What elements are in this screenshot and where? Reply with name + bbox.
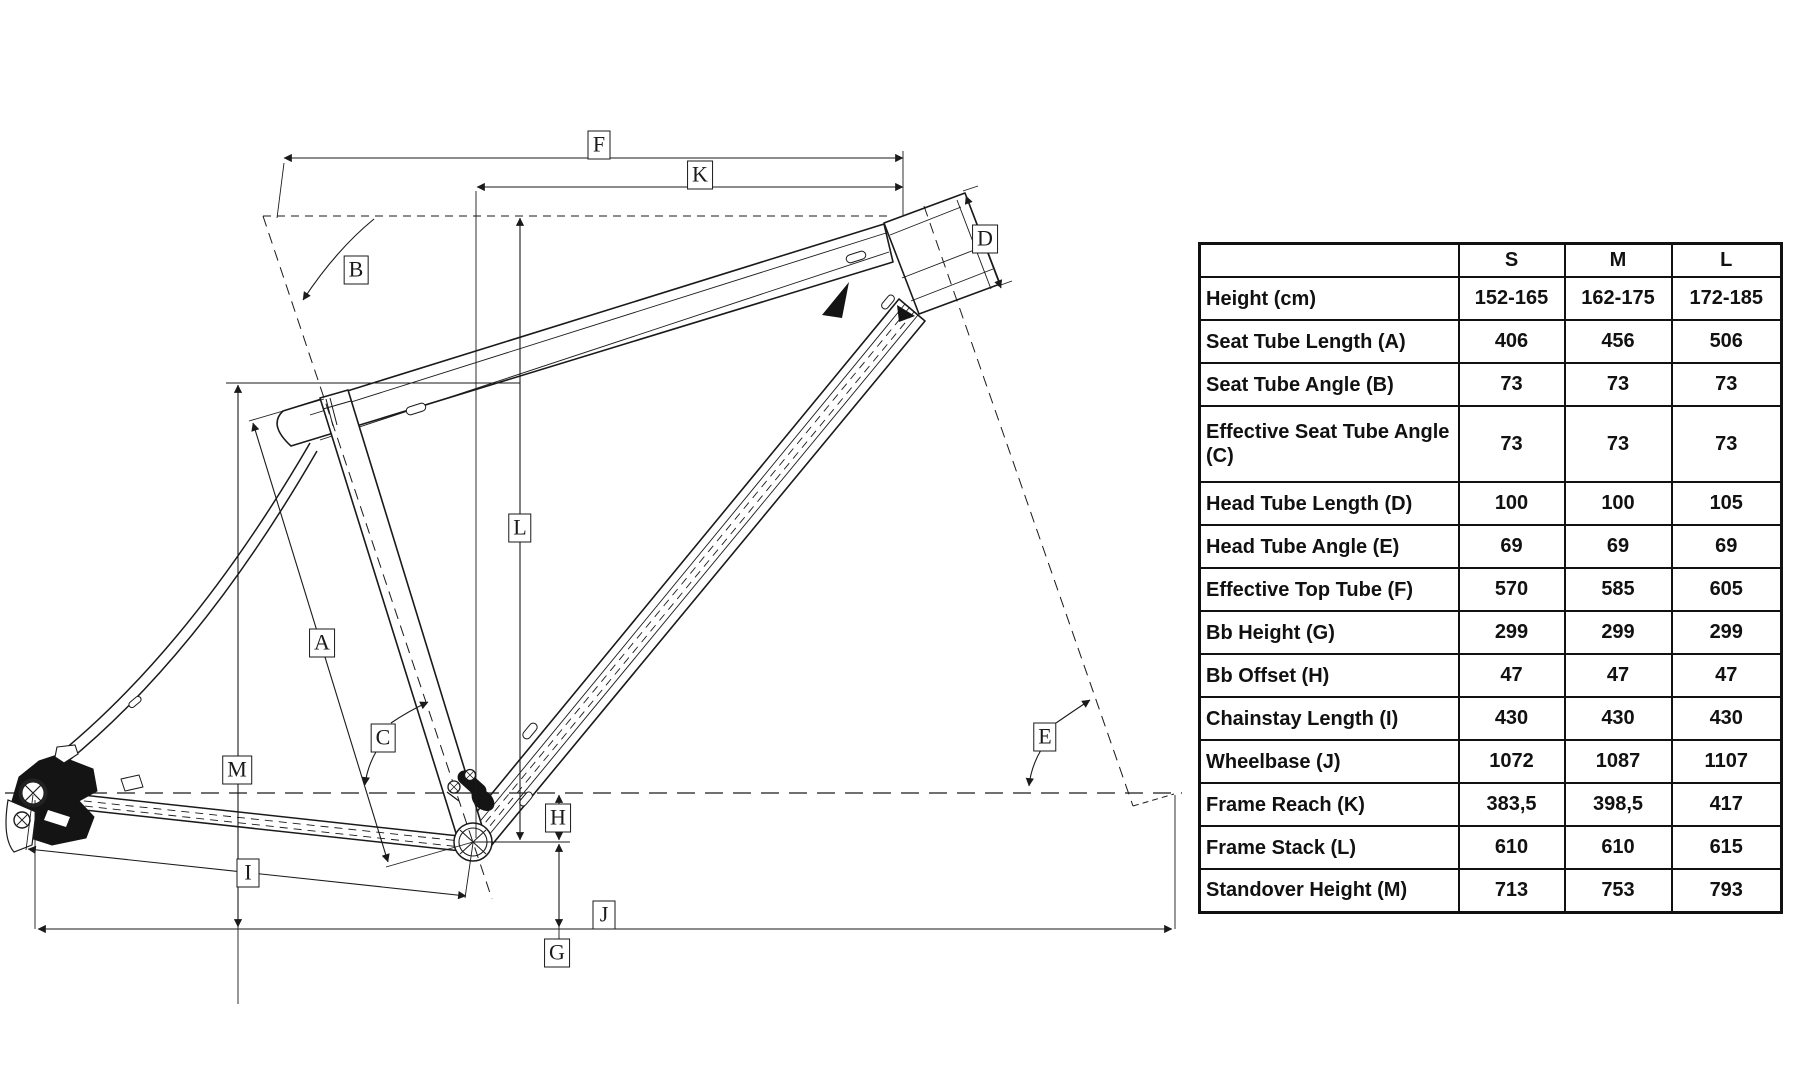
row-value: 615 [1672,826,1782,869]
row-label: Height (cm) [1200,277,1459,320]
row-value: 73 [1672,406,1782,482]
table-row: Height (cm)152-165162-175172-185 [1200,277,1782,320]
table-row: Effective Top Tube (F)570585605 [1200,568,1782,611]
row-value: 506 [1672,320,1782,363]
size-header-M: M [1565,244,1672,278]
row-label: Wheelbase (J) [1200,740,1459,783]
row-value: 69 [1459,525,1565,568]
row-value: 172-185 [1672,277,1782,320]
arc-E-head-tube-angle [1029,750,1041,786]
row-label: Seat Tube Length (A) [1200,320,1459,363]
down-tube-cable-port [521,722,539,741]
row-value: 1072 [1459,740,1565,783]
dim-label-H: H [545,804,571,833]
row-value: 383,5 [1459,783,1565,826]
table-header-row: SML [1200,244,1782,278]
row-label: Chainstay Length (I) [1200,697,1459,740]
dim-label-I: I [237,859,260,888]
extension-lines [26,151,1175,1004]
row-value: 73 [1459,406,1565,482]
row-value: 585 [1565,568,1672,611]
row-value: 100 [1565,482,1672,525]
row-value: 610 [1565,826,1672,869]
head-gusset [822,282,849,318]
dim-label-B: B [344,256,369,285]
top-tube [277,224,893,446]
table-corner-cell [1200,244,1459,278]
row-value: 73 [1672,363,1782,406]
row-value: 605 [1672,568,1782,611]
row-value: 753 [1565,869,1672,912]
table-row: Seat Tube Angle (B)737373 [1200,363,1782,406]
dim-label-K: K [687,161,713,190]
row-value: 69 [1672,525,1782,568]
row-value: 299 [1459,611,1565,654]
row-value: 610 [1459,826,1565,869]
dim-label-F: F [588,131,611,160]
row-value: 162-175 [1565,277,1672,320]
frame-geometry-page: FKBDLACMEHIJG SML Height (cm)152-165162-… [0,0,1800,1080]
dim-label-E: E [1033,723,1056,752]
table-row: Bb Offset (H)474747 [1200,654,1782,697]
steering-axis [924,206,1133,806]
dim-label-D: D [972,225,998,254]
table-row: Effective Seat Tube Angle (C)737373 [1200,406,1782,482]
row-label: Effective Seat Tube Angle (C) [1200,406,1459,482]
row-value: 73 [1565,406,1672,482]
row-value: 100 [1459,482,1565,525]
arc-E-head-tube-angle [1056,700,1090,723]
chainstay-mount-tab [121,775,143,791]
seat-tube-axis [263,216,492,899]
row-value: 47 [1459,654,1565,697]
row-label: Head Tube Angle (E) [1200,525,1459,568]
row-value: 430 [1565,697,1672,740]
row-value: 73 [1565,363,1672,406]
row-value: 73 [1459,363,1565,406]
row-value: 69 [1565,525,1672,568]
dimension-lines [26,151,1175,1004]
dim-label-A: A [309,629,335,658]
row-value: 47 [1672,654,1782,697]
head-tube [884,193,1000,314]
size-header-L: L [1672,244,1782,278]
dim-label-M: M [222,756,252,785]
row-value: 152-165 [1459,277,1565,320]
row-value: 570 [1459,568,1565,611]
fork-offset-line [1133,794,1174,806]
row-label: Frame Reach (K) [1200,783,1459,826]
table-row: Frame Stack (L)610610615 [1200,826,1782,869]
row-value: 1087 [1565,740,1672,783]
table-row: Seat Tube Length (A)406456506 [1200,320,1782,363]
construction-lines [5,206,1182,899]
row-value: 456 [1565,320,1672,363]
row-value: 406 [1459,320,1565,363]
row-value: 299 [1565,611,1672,654]
size-header-S: S [1459,244,1565,278]
dim-label-J: J [593,901,616,930]
row-label: Head Tube Length (D) [1200,482,1459,525]
row-value: 299 [1672,611,1782,654]
row-value: 47 [1565,654,1672,697]
table-row: Standover Height (M)713753793 [1200,869,1782,912]
row-label: Bb Offset (H) [1200,654,1459,697]
seatstay [44,443,317,774]
row-label: Seat Tube Angle (B) [1200,363,1459,406]
row-value: 105 [1672,482,1782,525]
row-value: 430 [1672,697,1782,740]
row-value: 713 [1459,869,1565,912]
row-value: 793 [1672,869,1782,912]
table-row: Head Tube Angle (E)696969 [1200,525,1782,568]
row-label: Effective Top Tube (F) [1200,568,1459,611]
row-value: 417 [1672,783,1782,826]
table-row: Wheelbase (J)107210871107 [1200,740,1782,783]
row-value: 430 [1459,697,1565,740]
dim-label-L: L [508,514,531,543]
row-label: Standover Height (M) [1200,869,1459,912]
arc-C-effective-seat-angle [365,750,377,785]
table-row: Frame Reach (K)383,5398,5417 [1200,783,1782,826]
dim-label-G: G [544,939,570,968]
chainstay [55,792,461,851]
geometry-table: SML Height (cm)152-165162-175172-185Seat… [1198,242,1783,914]
dim-label-C: C [371,724,396,753]
row-label: Bb Height (G) [1200,611,1459,654]
table-row: Head Tube Length (D)100100105 [1200,482,1782,525]
table-row: Chainstay Length (I)430430430 [1200,697,1782,740]
row-value: 398,5 [1565,783,1672,826]
down-tube [461,299,925,852]
table-row: Bb Height (G)299299299 [1200,611,1782,654]
row-value: 1107 [1672,740,1782,783]
row-label: Frame Stack (L) [1200,826,1459,869]
